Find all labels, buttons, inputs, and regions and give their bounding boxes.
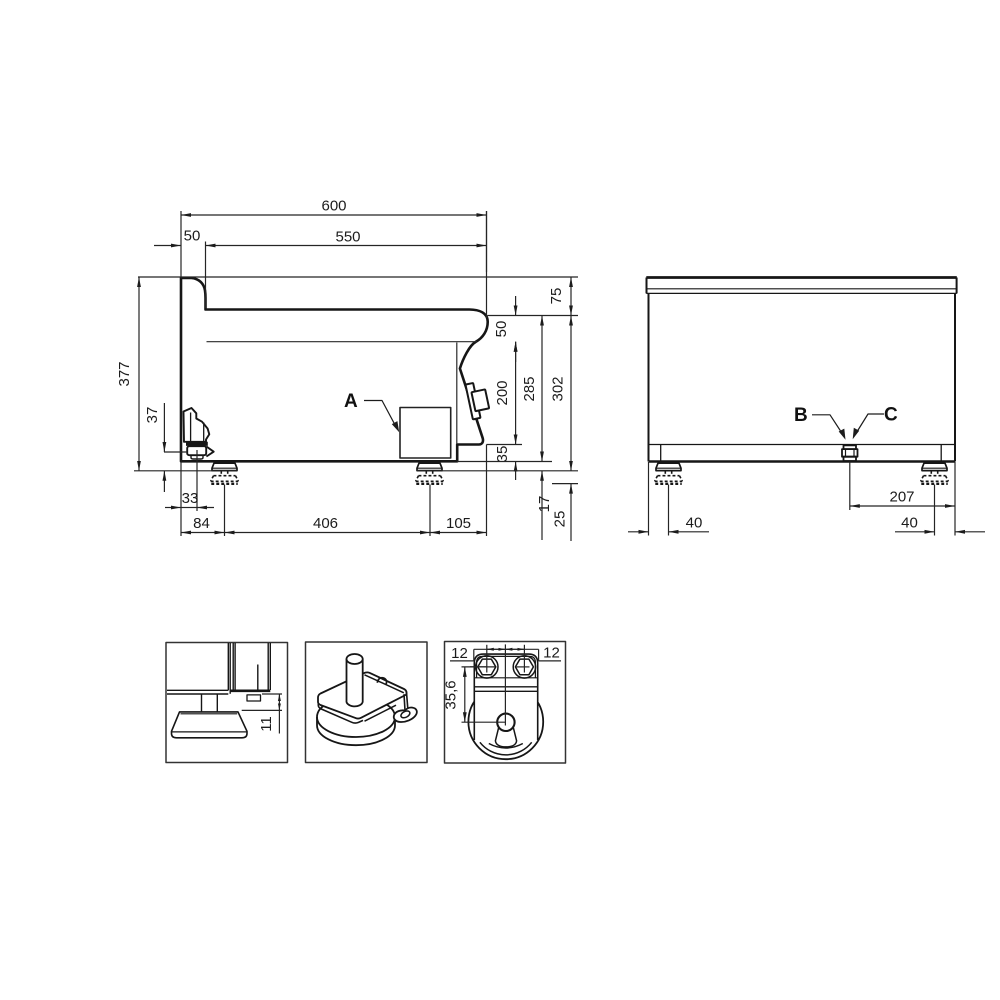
svg-text:600: 600 [321, 198, 346, 215]
svg-text:50: 50 [184, 228, 201, 245]
svg-text:105: 105 [446, 515, 471, 532]
svg-text:35: 35 [494, 446, 511, 463]
svg-text:40: 40 [686, 514, 703, 531]
svg-text:12: 12 [543, 645, 560, 662]
svg-text:550: 550 [335, 229, 360, 246]
svg-text:35,6: 35,6 [443, 680, 460, 709]
svg-text:40: 40 [901, 514, 918, 531]
svg-text:37: 37 [144, 407, 161, 424]
svg-text:406: 406 [313, 515, 338, 532]
svg-text:12: 12 [451, 645, 468, 662]
svg-text:50: 50 [493, 321, 510, 338]
svg-text:17: 17 [536, 496, 553, 513]
svg-text:285: 285 [521, 376, 538, 401]
svg-text:C: C [884, 405, 898, 426]
svg-text:75: 75 [548, 288, 565, 305]
svg-text:377: 377 [116, 361, 133, 386]
svg-text:A: A [344, 391, 358, 412]
svg-text:200: 200 [494, 380, 511, 405]
svg-text:B: B [794, 405, 808, 426]
svg-text:302: 302 [550, 376, 567, 401]
svg-text:207: 207 [889, 489, 914, 506]
svg-text:84: 84 [193, 515, 210, 532]
svg-text:25: 25 [552, 511, 569, 528]
svg-text:33: 33 [182, 490, 199, 507]
svg-text:11: 11 [258, 716, 275, 732]
